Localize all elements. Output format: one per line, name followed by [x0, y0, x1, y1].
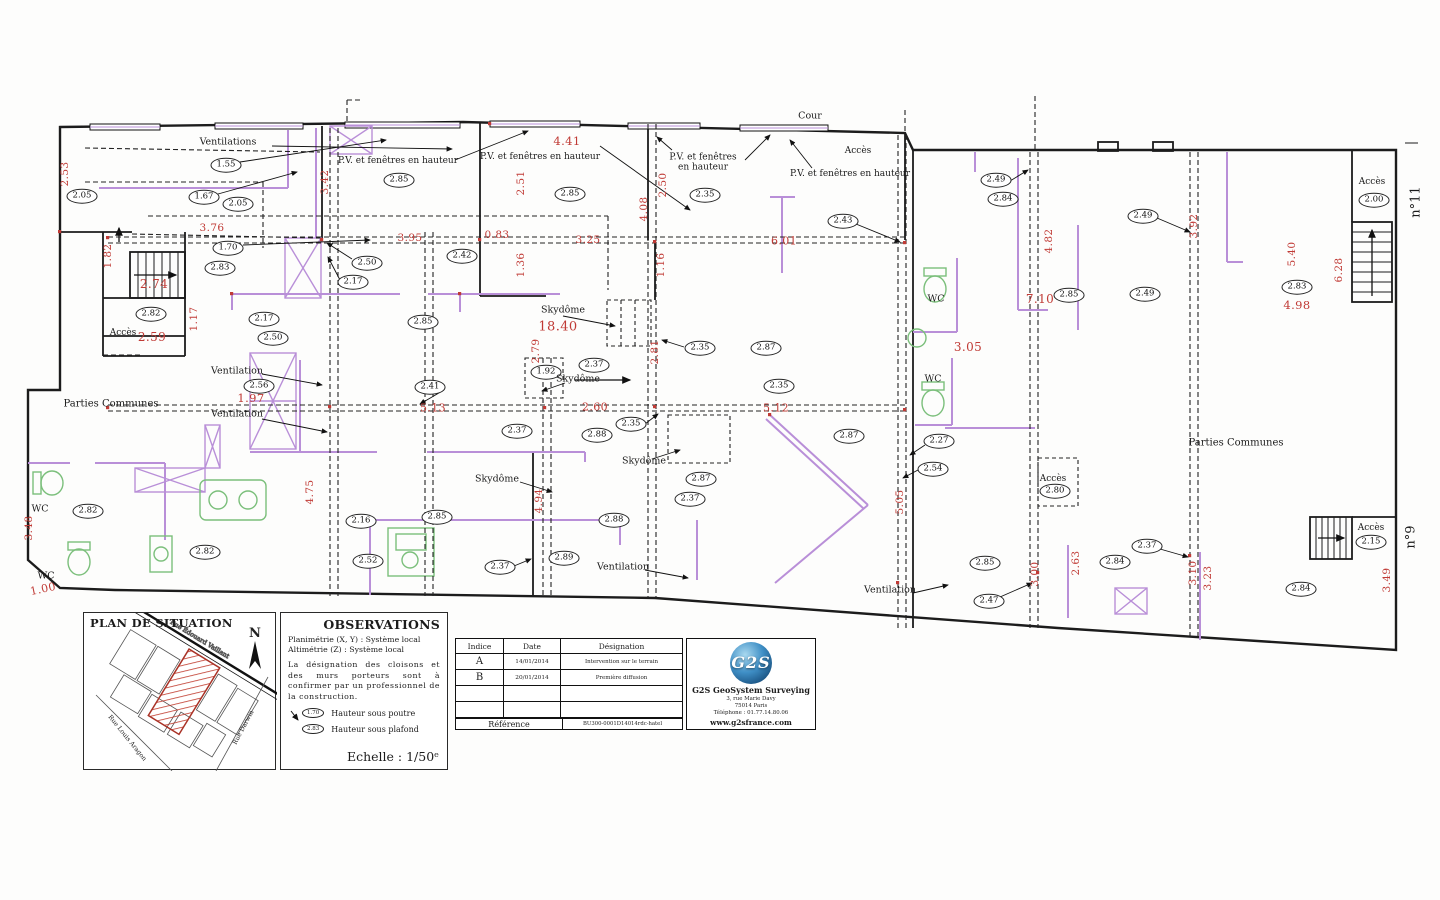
- cell-designation: Intervention sur le terrain: [561, 654, 682, 669]
- cell-indice: [456, 702, 504, 717]
- observations-box: OBSERVATIONS Planimétrie (X, Y) : Systèm…: [280, 612, 448, 770]
- revision-row-a: A 14/01/2014 Intervention sur le terrain: [456, 654, 682, 670]
- cell-date: 14/01/2014: [504, 654, 561, 669]
- revision-row-b: B 20/01/2014 Première diffusion: [456, 670, 682, 686]
- header-designation: Désignation: [561, 639, 682, 653]
- leader-lines: [218, 131, 1190, 597]
- street-label-darwin: Rue Darwin: [232, 709, 256, 746]
- legend-pointer-icon: [289, 709, 303, 723]
- ventilation-shafts: [135, 126, 1147, 614]
- cell-designation: [561, 702, 682, 717]
- company-website: www.g2sfrance.com: [687, 718, 815, 727]
- situation-map: Rue Édouard Vaillant Rue Louis Aragon Ru…: [84, 613, 277, 771]
- cell-indice: [456, 686, 504, 701]
- cell-indice: A: [456, 654, 504, 669]
- reference-label: Référence: [456, 719, 563, 729]
- interior-walls: [60, 122, 1418, 628]
- revision-row-empty: [456, 686, 682, 702]
- beam-dashed-lines: [85, 96, 1198, 640]
- reference-value: BU300-0001D14014rdc-hatel: [563, 719, 682, 729]
- cell-designation: Première diffusion: [561, 670, 682, 685]
- company-name: G2S GeoSystem Surveying: [687, 685, 815, 695]
- reference-row: Référence BU300-0001D14014rdc-hatel: [456, 718, 682, 729]
- street-label-aragon: Rue Louis Aragon: [106, 714, 147, 763]
- floor-plan-sheet: 2.051.551.672.051.702.832.822.502.172.85…: [0, 0, 1440, 900]
- outer-walls: [28, 122, 1396, 650]
- sanitary-fixtures: [33, 268, 946, 576]
- subject-parcel: [148, 649, 219, 734]
- company-block: G2S G2S GeoSystem Surveying 3, rue Marie…: [686, 638, 816, 730]
- company-address-line2: 75014 Paris: [687, 703, 815, 710]
- g2s-logo-icon: G2S: [730, 642, 772, 684]
- revision-header-row: Indice Date Désignation: [456, 639, 682, 654]
- cell-date: [504, 686, 561, 701]
- cell-date: [504, 702, 561, 717]
- observations-title: OBSERVATIONS: [288, 617, 440, 632]
- stair-treads: [138, 232, 1392, 559]
- north-letter: N: [249, 626, 261, 641]
- revision-table: Indice Date Désignation A 14/01/2014 Int…: [455, 638, 683, 730]
- scale-label: Echelle : 1/50ᵉ: [347, 749, 439, 764]
- legend-badge-poutre: 1.70: [302, 708, 324, 718]
- cell-date: 20/01/2014: [504, 670, 561, 685]
- observation-paragraph: La désignation des cloisons et des murs …: [288, 660, 440, 702]
- legend-badge-plafond: 2.83: [302, 724, 324, 734]
- cell-designation: [561, 686, 682, 701]
- company-phone: Téléphone : 01.77.14.80.06: [687, 710, 815, 717]
- legend-label-poutre: Hauteur sous poutre: [331, 709, 415, 718]
- situation-plan-box: Rue Édouard Vaillant Rue Louis Aragon Ru…: [83, 612, 276, 770]
- situation-title: PLAN DE SITUATION: [90, 616, 233, 630]
- observation-line: Planimétrie (X, Y) : Système local: [288, 635, 440, 644]
- north-arrow-icon: [249, 641, 261, 669]
- legend-label-plafond: Hauteur sous plafond: [331, 725, 419, 734]
- header-indice: Indice: [456, 639, 504, 653]
- cell-indice: B: [456, 670, 504, 685]
- revision-row-empty: [456, 702, 682, 718]
- observation-line: Altimétrie (Z) : Système local: [288, 645, 440, 654]
- company-address-line1: 3, rue Marie Davy: [687, 696, 815, 703]
- header-date: Date: [504, 639, 561, 653]
- partition-walls: [28, 124, 1243, 640]
